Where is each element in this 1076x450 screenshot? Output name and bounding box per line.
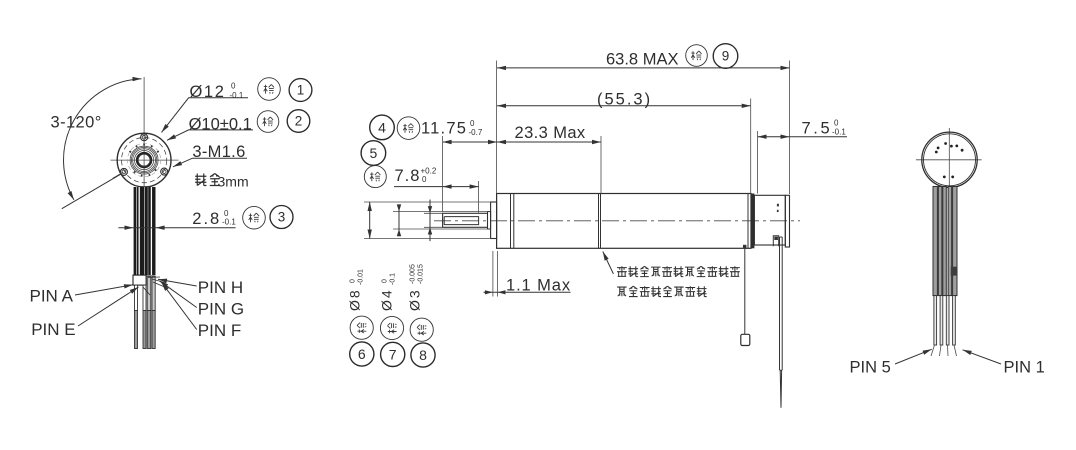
svg-text:Ø3: Ø3 [407, 288, 423, 311]
svg-text:5: 5 [370, 145, 378, 161]
svg-text:0: 0 [422, 175, 427, 184]
svg-text:PIN H: PIN H [198, 278, 243, 297]
svg-text:11.75: 11.75 [421, 120, 467, 138]
svg-text:PIN F: PIN F [198, 321, 241, 340]
svg-text:Ø12: Ø12 [190, 83, 226, 101]
svg-text:6: 6 [358, 346, 366, 362]
svg-text:0: 0 [382, 279, 389, 283]
svg-text:0: 0 [470, 119, 475, 128]
svg-text:3: 3 [278, 210, 286, 225]
svg-text:7.5: 7.5 [802, 119, 833, 137]
svg-text:PIN E: PIN E [31, 320, 75, 339]
svg-text:2.8: 2.8 [192, 210, 221, 228]
svg-text:1: 1 [297, 83, 305, 98]
svg-text:PIN A: PIN A [30, 287, 74, 306]
svg-text:-0.015: -0.015 [418, 264, 425, 284]
svg-text:PIN 5: PIN 5 [850, 359, 891, 377]
svg-text:3mm: 3mm [218, 174, 249, 190]
svg-text:4: 4 [378, 119, 386, 135]
svg-text:9: 9 [722, 49, 730, 64]
svg-text:3-M1.6: 3-M1.6 [192, 143, 245, 161]
svg-text:Ø10±0.1: Ø10±0.1 [189, 115, 252, 133]
svg-text:0: 0 [834, 119, 839, 128]
svg-text:1.1 Max: 1.1 Max [506, 277, 571, 295]
svg-text:PIN 1: PIN 1 [1004, 359, 1045, 377]
svg-text:63.8 MAX: 63.8 MAX [606, 50, 678, 68]
svg-text:-0.7: -0.7 [469, 128, 483, 137]
svg-text:-0.1: -0.1 [230, 91, 244, 100]
svg-text:0: 0 [231, 82, 236, 91]
svg-text:8: 8 [419, 347, 427, 363]
svg-text:Ø4: Ø4 [379, 288, 395, 311]
svg-text:-0.1: -0.1 [390, 273, 397, 285]
svg-text:PIN G: PIN G [198, 300, 244, 319]
svg-text:2: 2 [295, 114, 303, 129]
svg-text:(55.3): (55.3) [597, 91, 652, 109]
svg-text:3-120°: 3-120° [51, 114, 102, 132]
svg-text:7: 7 [389, 346, 397, 362]
svg-text:-0.005: -0.005 [410, 264, 417, 284]
svg-text:Ø8: Ø8 [347, 288, 363, 311]
svg-text:-0.1: -0.1 [832, 128, 846, 137]
svg-text:7.8: 7.8 [395, 167, 421, 185]
svg-text:23.3 Max: 23.3 Max [515, 124, 586, 142]
svg-text:-0.1: -0.1 [222, 218, 236, 227]
svg-text:-0.01: -0.01 [358, 269, 365, 285]
svg-text:0: 0 [350, 279, 357, 283]
